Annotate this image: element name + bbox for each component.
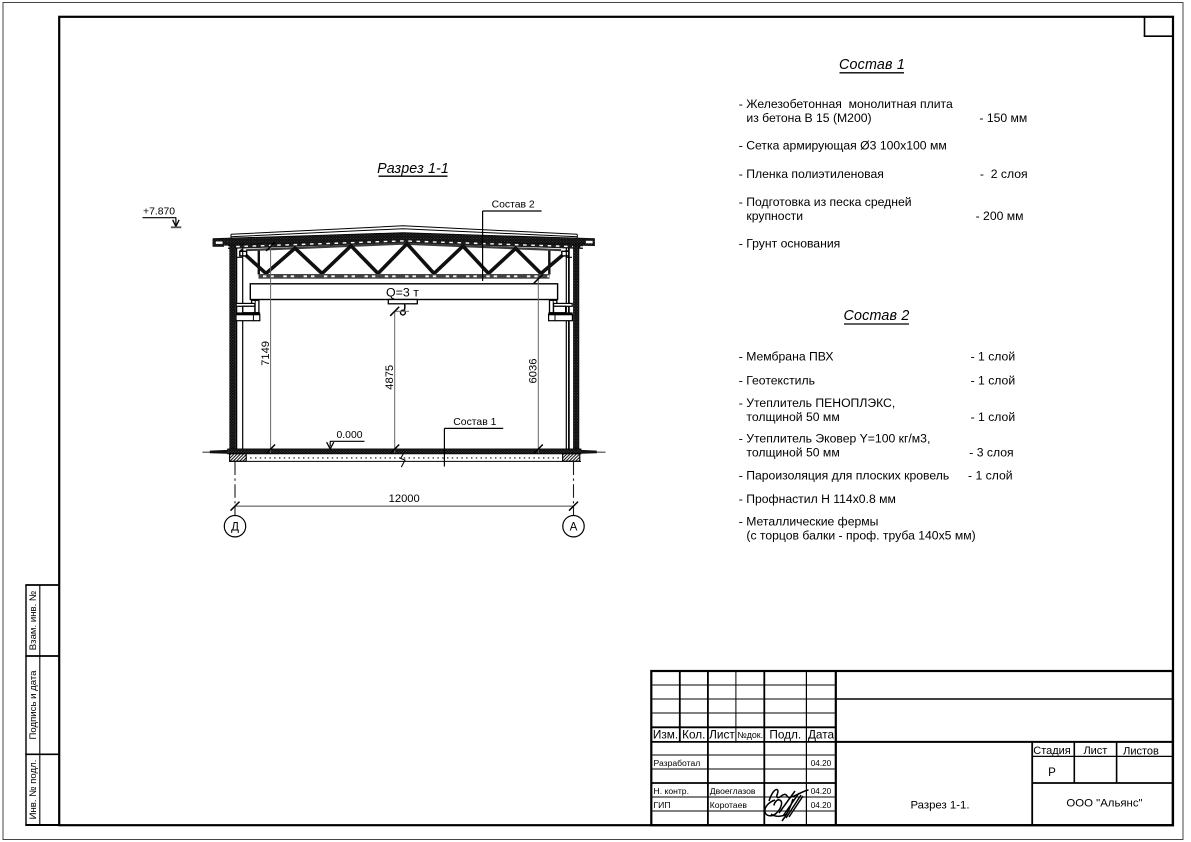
svg-text:- 1 слой: - 1 слой (971, 373, 1016, 387)
svg-text:ООО "Альянс": ООО "Альянс" (1066, 797, 1142, 809)
svg-text:из бетона В 15 (М200): из бетона В 15 (М200) (746, 111, 871, 125)
svg-text:Состав 2: Состав 2 (843, 308, 909, 324)
svg-text:- Пленка полиэтиленовая: - Пленка полиэтиленовая (739, 167, 884, 181)
svg-text:Кол.: Кол. (682, 728, 705, 742)
svg-text:0.000: 0.000 (337, 430, 363, 441)
svg-text:- 1 слой: - 1 слой (971, 410, 1016, 424)
svg-text:Листов: Листов (1123, 746, 1159, 758)
svg-text:04.20: 04.20 (811, 787, 832, 796)
svg-text:04.20: 04.20 (811, 759, 832, 768)
svg-text:- Подготовка из песка средней: - Подготовка из песка средней (739, 195, 912, 209)
svg-text:04.20: 04.20 (811, 801, 832, 810)
svg-text:- Утеплитель ПЕНОПЛЭКС,: - Утеплитель ПЕНОПЛЭКС, (739, 396, 895, 410)
svg-text:Дата: Дата (808, 728, 835, 742)
svg-text:6036: 6036 (528, 359, 540, 384)
svg-text:- Пароизоляция для плоских кро: - Пароизоляция для плоских кровель (739, 469, 949, 483)
svg-text:Двоеглазов: Двоеглазов (710, 786, 756, 796)
svg-text:Лист: Лист (1083, 745, 1107, 757)
svg-text:Инв. № подл.: Инв. № подл. (28, 760, 39, 820)
svg-text:- 200 мм: - 200 мм (976, 209, 1024, 223)
svg-text:- Геотекстиль: - Геотекстиль (739, 373, 815, 387)
svg-text:толщиной 50 мм: толщиной 50 мм (746, 445, 839, 459)
svg-text:Лист: Лист (709, 728, 735, 742)
svg-text:Коротаев: Коротаев (710, 800, 748, 810)
svg-text:- Грунт основания: - Грунт основания (739, 237, 840, 251)
svg-text:Стадия: Стадия (1033, 745, 1071, 757)
svg-text:- 3 слоя: - 3 слоя (969, 445, 1013, 459)
svg-text:- Утеплитель Эковер Y=100 кг/м: - Утеплитель Эковер Y=100 кг/м3, (739, 432, 931, 446)
svg-text:Подпись и дата: Подпись и дата (28, 670, 39, 740)
svg-text:- 150 мм: - 150 мм (979, 111, 1027, 125)
svg-text:№док.: №док. (737, 730, 763, 740)
svg-text:+7.870: +7.870 (143, 207, 175, 218)
svg-text:толщиной 50 мм: толщиной 50 мм (746, 410, 839, 424)
svg-text:Н. контр.: Н. контр. (654, 786, 689, 796)
svg-text:Q=3 т: Q=3 т (386, 285, 419, 299)
svg-text:4875: 4875 (384, 365, 396, 390)
svg-text:- Сетка армирующая Ø3 100х100: - Сетка армирующая Ø3 100х100 мм (739, 139, 947, 153)
svg-text:Подл.: Подл. (769, 728, 801, 742)
svg-text:Состав 2: Состав 2 (492, 200, 535, 211)
svg-text:- Профнастил Н 114х0.8 мм: - Профнастил Н 114х0.8 мм (739, 492, 896, 506)
svg-text:Изм.: Изм. (653, 728, 678, 742)
svg-text:Разрез 1-1.: Разрез 1-1. (910, 800, 969, 812)
svg-text:ГИП: ГИП (654, 800, 671, 810)
svg-text:(с торцов балки - проф. труба: (с торцов балки - проф. труба 140х5 мм) (746, 529, 975, 543)
svg-text:Состав 1: Состав 1 (839, 57, 905, 73)
svg-text:- 1 слой: - 1 слой (971, 350, 1016, 364)
svg-text:- 2 слоя: - 2 слоя (980, 167, 1028, 181)
svg-text:Разработал: Разработал (654, 758, 701, 768)
svg-text:Взам. инв. №: Взам. инв. № (28, 591, 39, 650)
svg-text:- Железобетонная монолитная п: - Железобетонная монолитная плита (739, 97, 953, 111)
svg-text:7149: 7149 (260, 341, 272, 366)
svg-text:- Мембрана ПВХ: - Мембрана ПВХ (739, 350, 834, 364)
svg-text:крупности: крупности (746, 209, 803, 223)
svg-text:Разрез 1-1: Разрез 1-1 (377, 161, 449, 177)
svg-text:Д: Д (231, 521, 239, 534)
svg-text:12000: 12000 (389, 493, 420, 505)
svg-text:- 1 слой: - 1 слой (968, 469, 1013, 483)
svg-text:- Металлические фермы: - Металлические фермы (739, 515, 879, 529)
svg-text:Состав 1: Состав 1 (453, 417, 496, 428)
svg-text:Р: Р (1048, 766, 1056, 779)
svg-text:А: А (570, 521, 578, 534)
